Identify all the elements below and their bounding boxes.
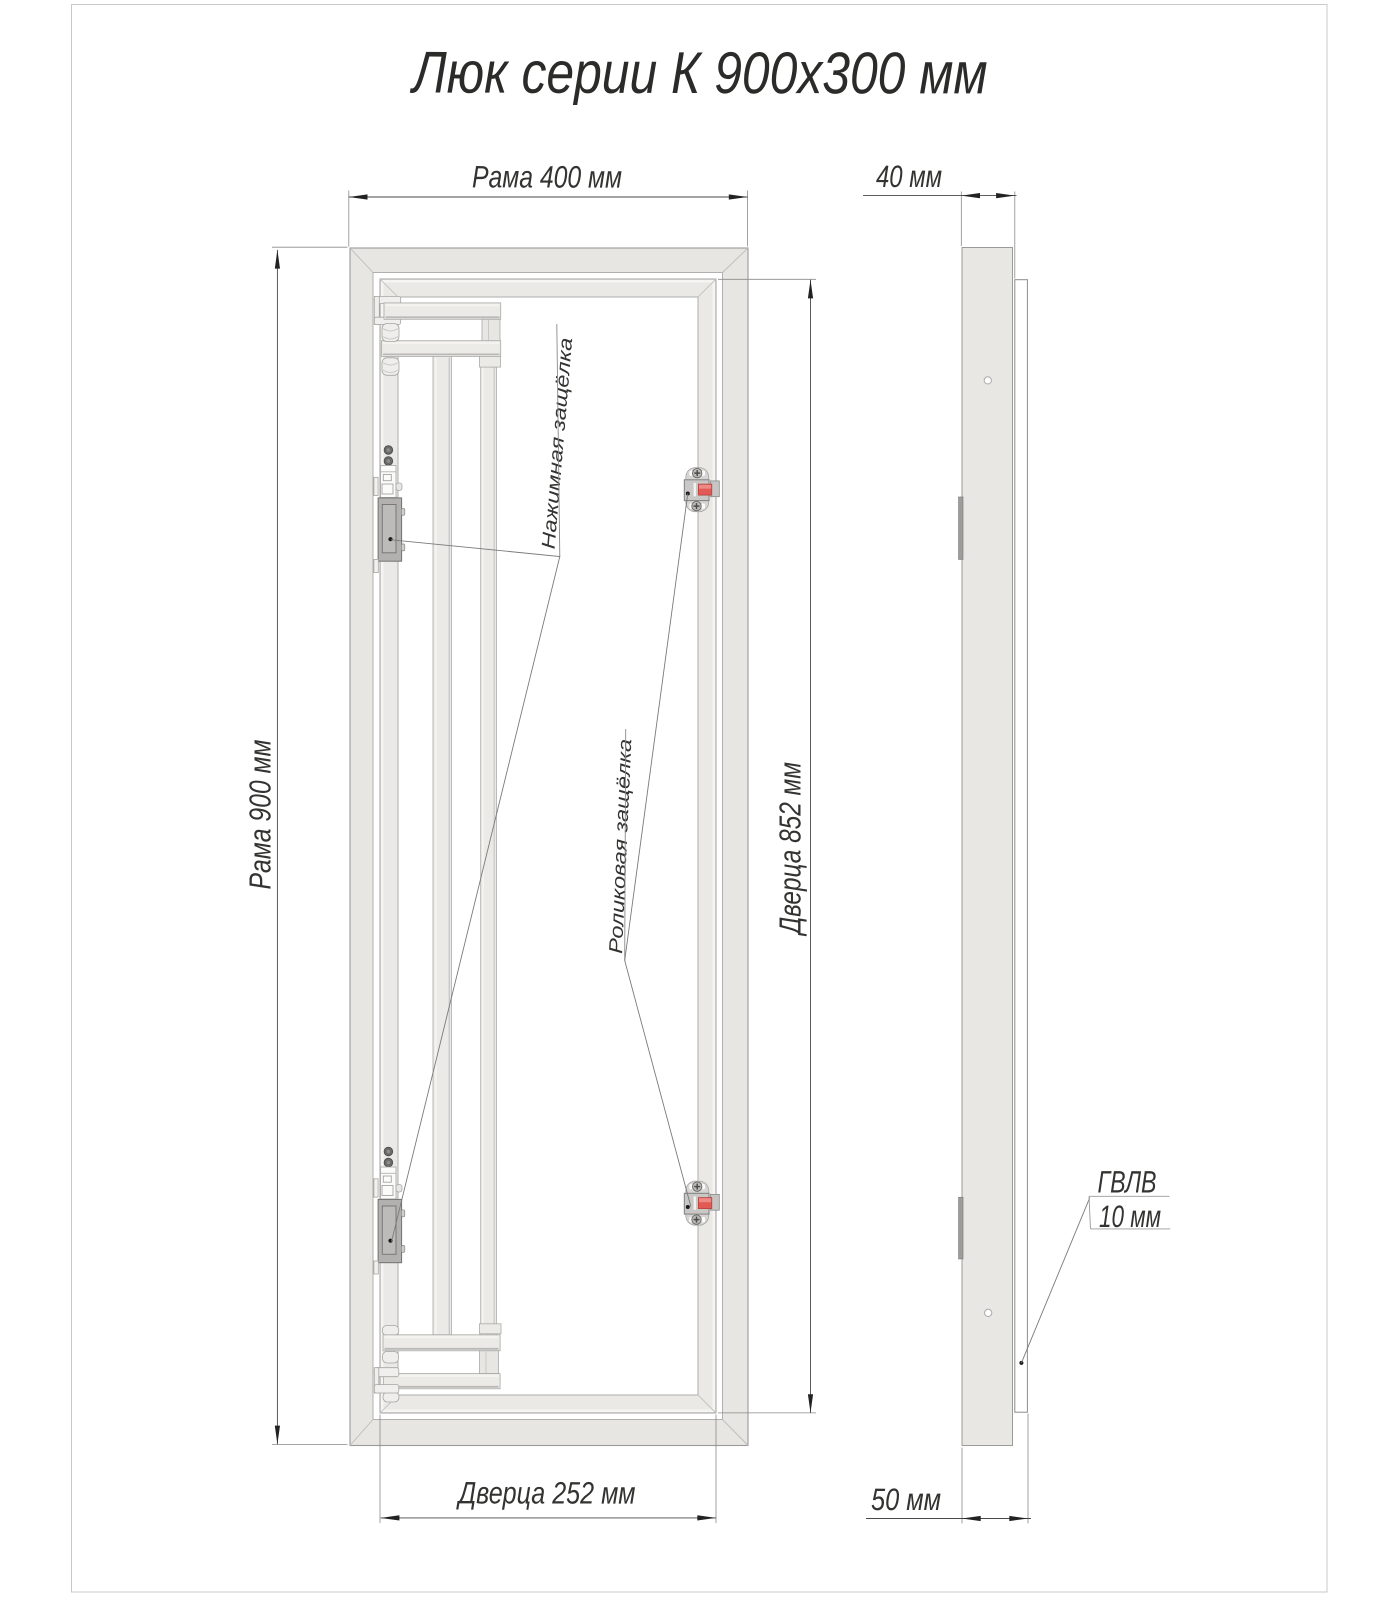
svg-text:ГВЛВ: ГВЛВ	[1097, 1164, 1156, 1199]
svg-text:Рама 400 мм: Рама 400 мм	[472, 159, 622, 194]
svg-text:Люк серии К 900х300 мм: Люк серии К 900х300 мм	[409, 40, 987, 107]
svg-text:Дверца 852 мм: Дверца 852 мм	[773, 762, 808, 936]
svg-text:Дверца 252 мм: Дверца 252 мм	[456, 1475, 635, 1510]
svg-text:40 мм: 40 мм	[876, 159, 942, 194]
svg-text:50 мм: 50 мм	[871, 1482, 941, 1517]
svg-text:Рама 900 мм: Рама 900 мм	[243, 740, 278, 890]
svg-text:10 мм: 10 мм	[1099, 1199, 1161, 1234]
